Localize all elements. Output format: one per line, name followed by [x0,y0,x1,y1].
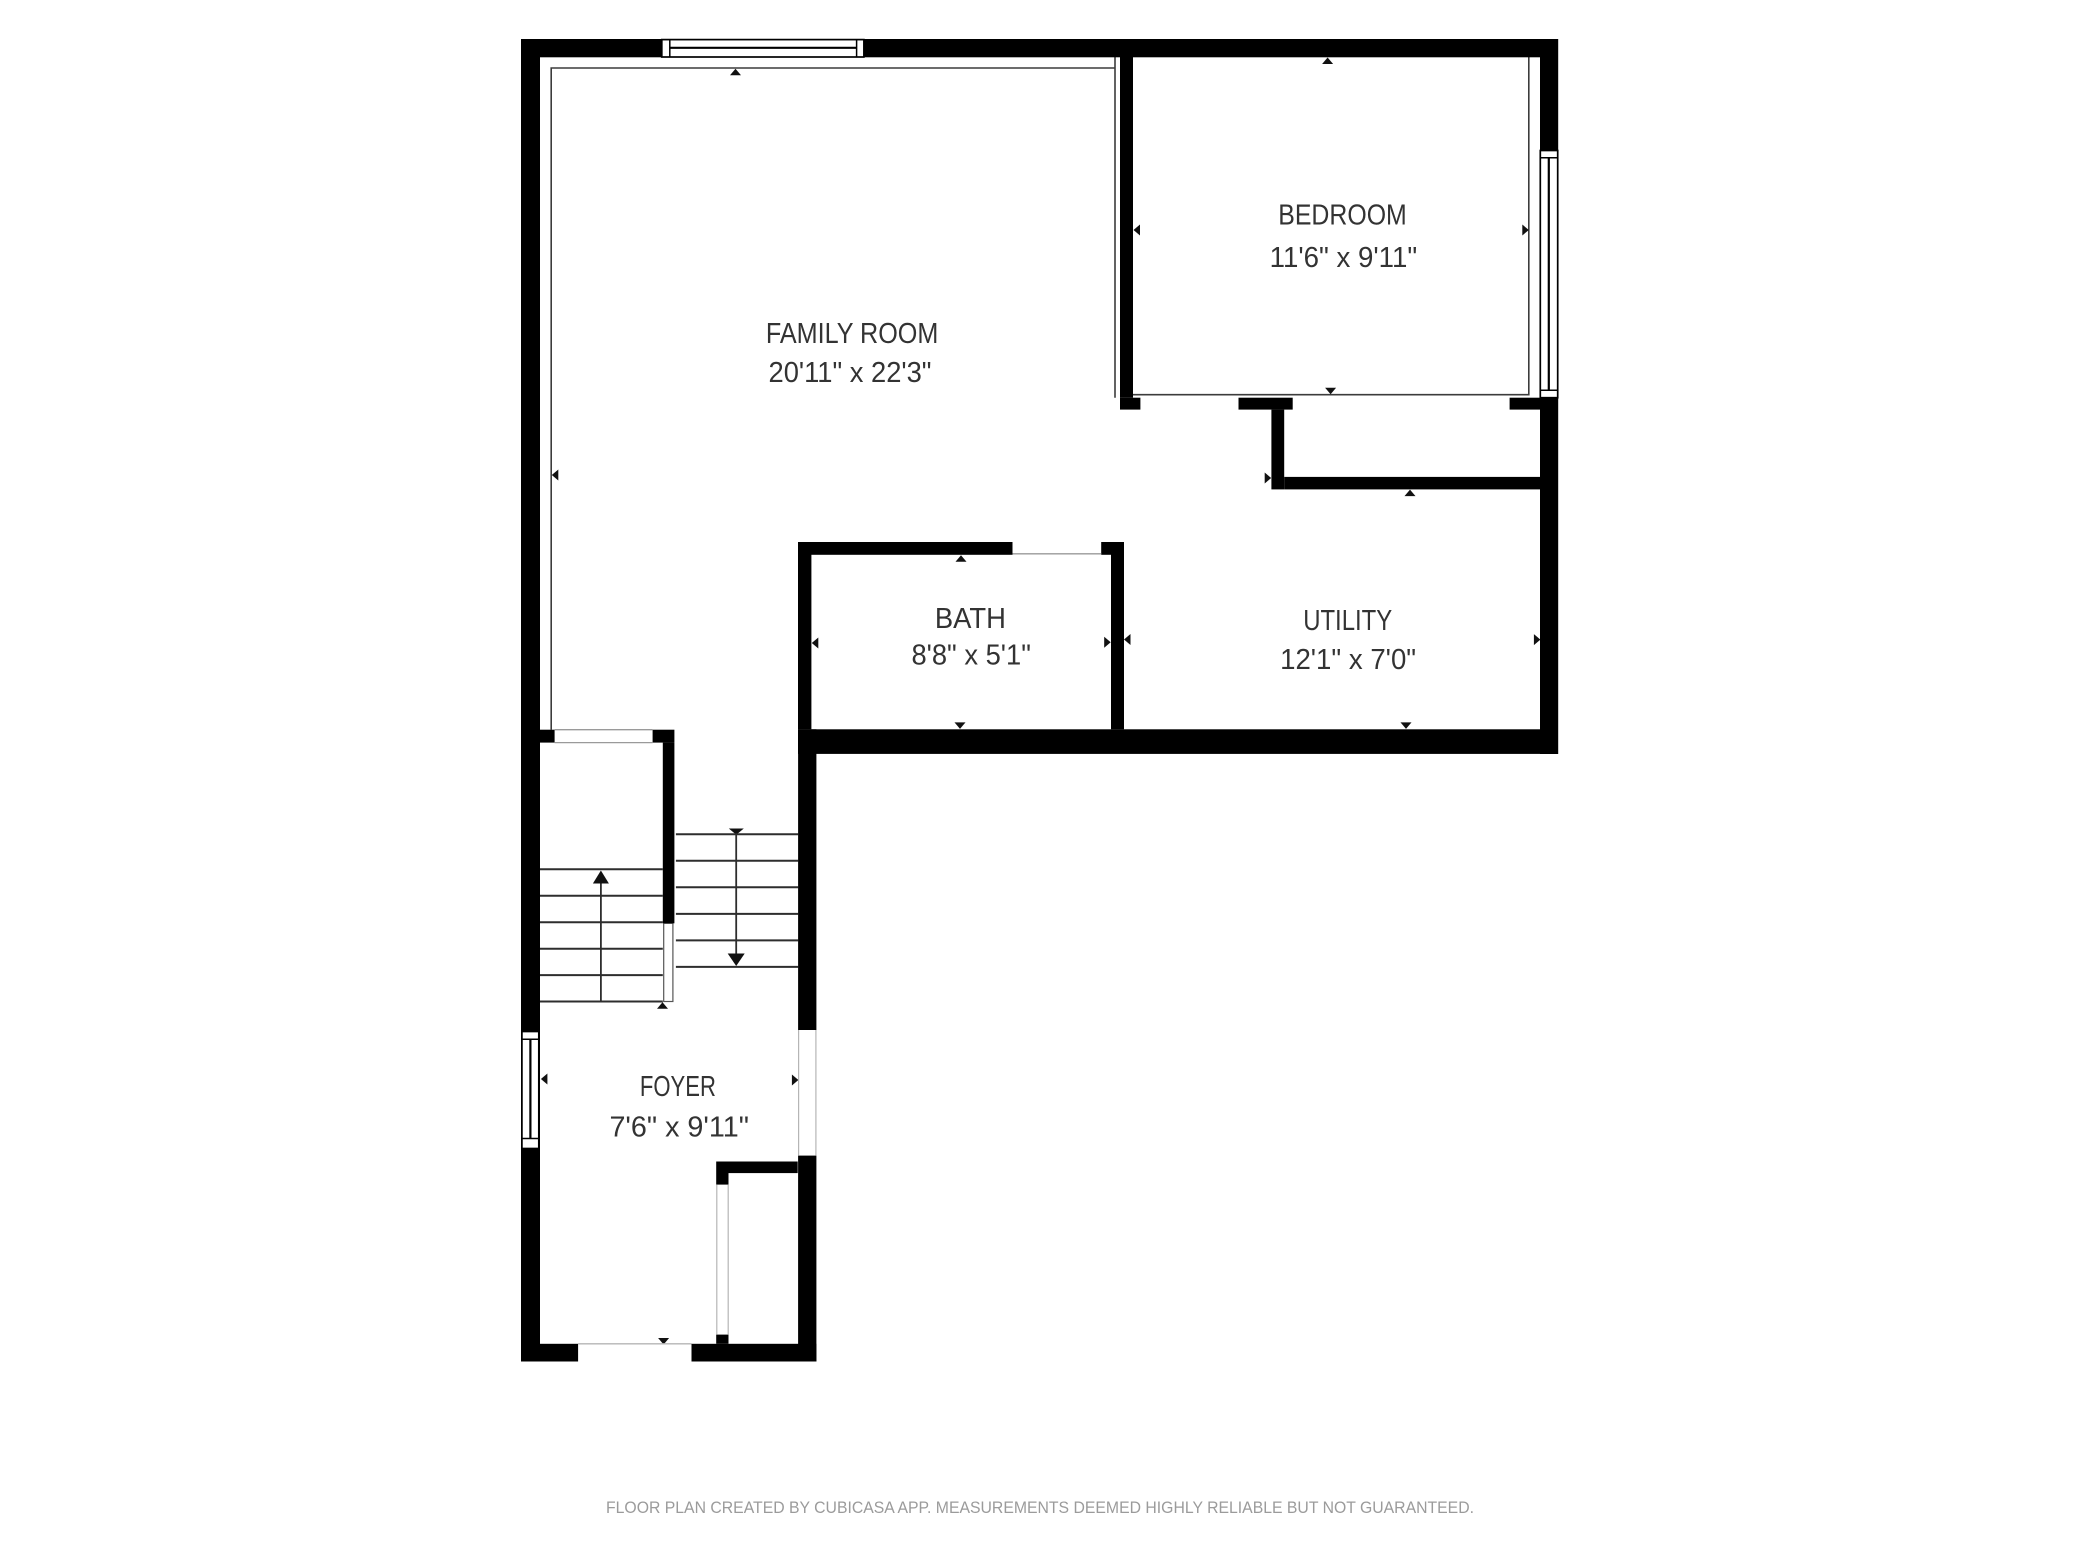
svg-text:7'6" x 9'11": 7'6" x 9'11" [609,1112,749,1144]
svg-text:BATH: BATH [935,603,1006,635]
svg-text:8'8" x 5'1": 8'8" x 5'1" [911,640,1031,672]
svg-text:11'6" x 9'11": 11'6" x 9'11" [1270,242,1418,274]
svg-text:UTILITY: UTILITY [1303,605,1392,637]
svg-text:BEDROOM: BEDROOM [1278,200,1407,232]
svg-text:12'1" x 7'0": 12'1" x 7'0" [1280,644,1416,676]
svg-text:FLOOR PLAN CREATED BY CUBICASA: FLOOR PLAN CREATED BY CUBICASA APP. MEAS… [606,1498,1474,1517]
svg-text:20'11" x 22'3": 20'11" x 22'3" [769,357,932,389]
svg-text:FAMILY ROOM: FAMILY ROOM [766,318,939,350]
svg-text:FOYER: FOYER [640,1071,716,1103]
